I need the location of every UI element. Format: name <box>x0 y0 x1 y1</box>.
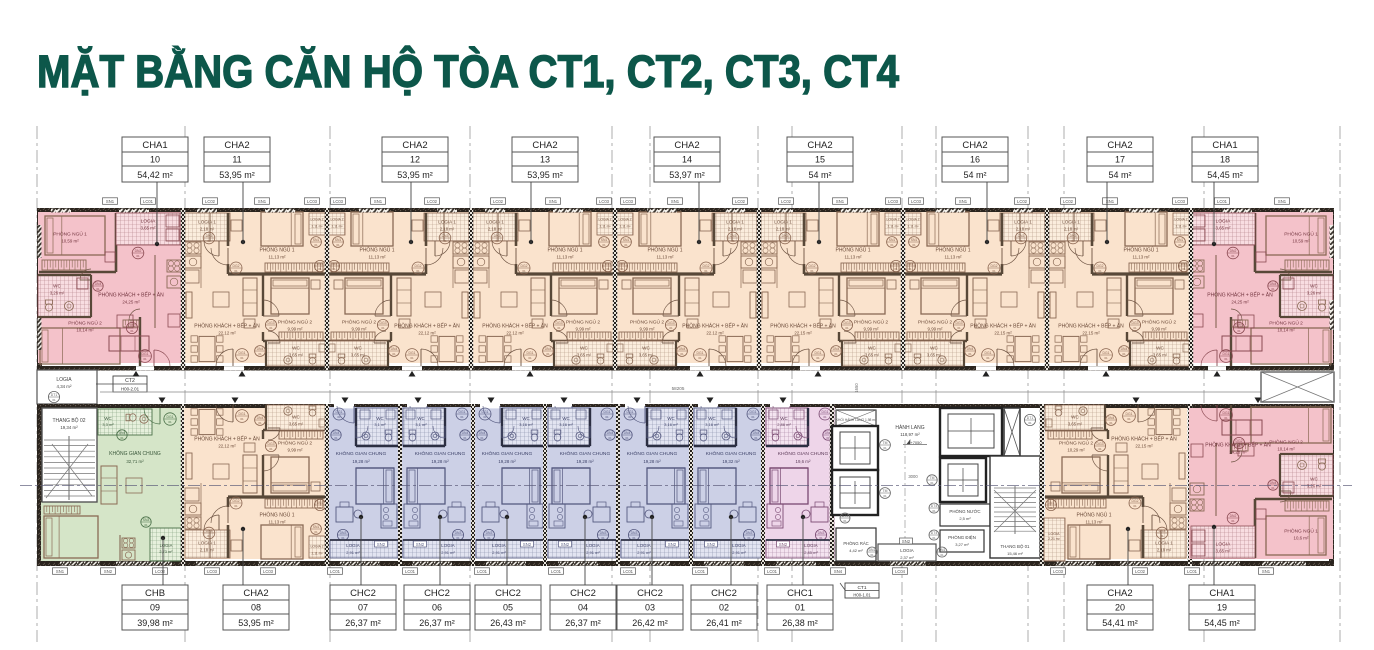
svg-text:CHA2: CHA2 <box>243 588 268 599</box>
svg-text:SN2: SN2 <box>902 539 911 544</box>
svg-text:WC: WC <box>292 415 300 420</box>
svg-text:SN2: SN2 <box>779 542 788 547</box>
svg-text:LOGIA 2: LOGIA 2 <box>310 218 323 222</box>
svg-text:LC01: LC01 <box>330 569 341 574</box>
svg-text:01: 01 <box>930 481 934 485</box>
svg-text:54 m²: 54 m² <box>963 170 986 180</box>
svg-text:LOGIA 1: LOGIA 1 <box>726 220 744 225</box>
svg-text:32,71 m²: 32,71 m² <box>126 459 144 464</box>
svg-text:WC: WC <box>667 416 674 421</box>
svg-text:DN1: DN1 <box>619 262 626 266</box>
svg-text:9,99 m²: 9,99 m² <box>352 327 367 332</box>
svg-text:H00-1.01: H00-1.01 <box>853 593 871 598</box>
svg-text:01: 01 <box>1127 417 1131 421</box>
svg-text:DN4: DN4 <box>624 431 631 435</box>
svg-text:CHA2: CHA2 <box>1107 588 1132 599</box>
svg-text:01: 01 <box>522 269 526 273</box>
svg-text:PHÒNG NGỦ 2: PHÒNG NGỦ 2 <box>854 319 889 326</box>
svg-text:22,12 m²: 22,12 m² <box>418 331 436 336</box>
svg-text:01: 01 <box>1098 269 1102 273</box>
svg-text:2,18 m²: 2,18 m² <box>440 227 455 232</box>
svg-text:PHÒNG NGỦ 2: PHÒNG NGỦ 2 <box>68 320 102 327</box>
svg-text:10,14 m²: 10,14 m² <box>1277 328 1295 333</box>
svg-text:19,32 m²: 19,32 m² <box>722 459 740 464</box>
svg-text:DG3: DG3 <box>380 321 387 325</box>
svg-text:DN3: DN3 <box>1018 234 1025 238</box>
svg-text:H00-2.01: H00-2.01 <box>121 387 140 392</box>
svg-text:19,28 m²: 19,28 m² <box>576 459 594 464</box>
svg-text:26,38 m²: 26,38 m² <box>782 618 818 628</box>
svg-text:18: 18 <box>1220 155 1230 165</box>
svg-text:LC01: LC01 <box>623 569 634 574</box>
svg-text:DG2: DG2 <box>991 264 998 268</box>
svg-text:DG1: DG1 <box>1223 352 1230 356</box>
svg-text:WC: WC <box>1310 477 1318 482</box>
svg-text:SN1: SN1 <box>1177 238 1184 242</box>
svg-text:LOGIA: LOGIA <box>1216 219 1231 225</box>
svg-text:19,6 m²: 19,6 m² <box>796 459 811 464</box>
svg-text:2,18 m²: 2,18 m² <box>1064 227 1079 232</box>
svg-text:12: 12 <box>410 155 420 165</box>
svg-text:PHÒNG NGỦ 1: PHÒNG NGỦ 1 <box>259 512 294 519</box>
svg-text:LOGIA 2: LOGIA 2 <box>618 218 631 222</box>
svg-text:DG2: DG2 <box>1097 264 1104 268</box>
svg-text:LC01: LC01 <box>143 199 154 204</box>
svg-text:KHÔNG GIAN CHUNG: KHÔNG GIAN CHUNG <box>415 450 466 457</box>
svg-text:DN4: DN4 <box>1108 416 1115 420</box>
svg-text:01: 01 <box>495 239 499 243</box>
svg-text:01: 01 <box>1231 254 1235 258</box>
svg-text:LC03: LC03 <box>333 199 344 204</box>
svg-text:01: 01 <box>269 326 273 330</box>
svg-text:118,97 m²: 118,97 m² <box>900 432 920 437</box>
svg-text:01: 01 <box>258 421 262 425</box>
svg-text:3,16 m²: 3,16 m² <box>664 422 678 427</box>
svg-text:PHÒNG NGỦ 1: PHÒNG NGỦ 1 <box>835 247 870 254</box>
svg-text:01: 01 <box>754 436 758 440</box>
svg-text:DN1: DN1 <box>907 262 914 266</box>
svg-text:2,11 m²: 2,11 m² <box>600 225 612 229</box>
svg-text:54,42 m²: 54,42 m² <box>137 170 173 180</box>
svg-text:TM: TM <box>883 489 888 493</box>
svg-text:SN1: SN1 <box>889 238 896 242</box>
svg-text:LC01: LC01 <box>1217 199 1228 204</box>
svg-text:DN3: DN3 <box>455 531 462 535</box>
svg-text:LC01: LC01 <box>477 569 488 574</box>
svg-text:LC04: LC04 <box>895 569 906 574</box>
svg-text:DN3: DN3 <box>442 234 449 238</box>
svg-text:2,11 m²: 2,11 m² <box>908 225 920 229</box>
svg-text:SN1: SN1 <box>1278 199 1287 204</box>
svg-text:DN4: DN4 <box>753 431 760 435</box>
svg-text:DN4: DN4 <box>479 431 486 435</box>
svg-text:PHÒNG KHÁCH + BẾP + ĂN: PHÒNG KHÁCH + BẾP + ĂN <box>394 323 460 330</box>
svg-text:PHÒNG KHÁCH + BẾP + ĂN: PHÒNG KHÁCH + BẾP + ĂN <box>98 292 164 299</box>
svg-text:LC02: LC02 <box>155 569 166 574</box>
svg-text:20: 20 <box>1115 603 1125 613</box>
svg-text:53,95 m²: 53,95 m² <box>527 170 563 180</box>
svg-text:22.12 m²: 22.12 m² <box>706 331 724 336</box>
svg-text:01: 01 <box>870 553 874 557</box>
svg-text:2,91 m²: 2,91 m² <box>637 550 651 555</box>
svg-text:WC: WC <box>417 416 424 421</box>
svg-text:PHÒNG NGỦ 1: PHÒNG NGỦ 1 <box>547 247 582 254</box>
svg-text:01: 01 <box>332 267 336 271</box>
svg-text:2,86 m²: 2,86 m² <box>777 422 791 427</box>
svg-text:2,21 m²: 2,21 m² <box>1048 537 1060 541</box>
svg-text:CHA2: CHA2 <box>1107 140 1132 151</box>
svg-text:SN1: SN1 <box>623 238 630 242</box>
svg-text:01: 01 <box>1133 326 1137 330</box>
svg-text:DN3: DN3 <box>1070 234 1077 238</box>
svg-text:LOGIA 2: LOGIA 2 <box>1174 218 1187 222</box>
svg-text:1650: 1650 <box>854 383 859 393</box>
svg-text:DN4: DN4 <box>95 282 102 286</box>
svg-text:DN1: DN1 <box>317 501 324 505</box>
svg-text:01: 01 <box>1098 447 1102 451</box>
svg-text:PHÒNG ĐIỆN: PHÒNG ĐIỆN <box>948 535 976 540</box>
svg-text:22,15 m²: 22,15 m² <box>794 331 812 336</box>
svg-text:9,99 m²: 9,99 m² <box>576 327 591 332</box>
svg-text:10,29 m²: 10,29 m² <box>1067 448 1085 453</box>
svg-text:DG1: DG1 <box>336 410 343 414</box>
svg-text:9,99 m²: 9,99 m² <box>288 327 303 332</box>
svg-text:LC03: LC03 <box>888 199 899 204</box>
svg-text:HÀNH LANG: HÀNH LANG <box>895 424 924 431</box>
svg-text:DN4: DN4 <box>967 347 974 351</box>
svg-text:01: 01 <box>460 415 464 419</box>
svg-text:WC: WC <box>104 416 111 421</box>
svg-text:LOGIA 2: LOGIA 2 <box>330 218 343 222</box>
svg-text:DG1: DG1 <box>822 410 829 414</box>
svg-text:DN3: DN3 <box>206 234 213 238</box>
svg-text:KHÔNG GIAN CHUNG: KHÔNG GIAN CHUNG <box>560 450 611 457</box>
svg-text:11,13 m²: 11,13 m² <box>1085 520 1103 525</box>
svg-text:01: 01 <box>234 504 238 508</box>
svg-text:CHA1: CHA1 <box>1209 588 1234 599</box>
svg-text:01: 01 <box>52 398 56 402</box>
svg-text:PHÒNG KHÁCH + BẾP + ĂN: PHÒNG KHÁCH + BẾP + ĂN <box>770 323 836 330</box>
svg-text:WC: WC <box>708 416 715 421</box>
svg-text:01: 01 <box>1133 504 1137 508</box>
svg-text:19,28 m²: 19,28 m² <box>498 459 516 464</box>
svg-text:22,12 m²: 22,12 m² <box>218 331 236 336</box>
svg-text:22,12 m²: 22,12 m² <box>218 444 236 449</box>
svg-text:07: 07 <box>358 603 368 613</box>
svg-text:2,91 m²: 2,91 m² <box>441 550 455 555</box>
svg-text:LC02: LC02 <box>493 199 504 204</box>
svg-text:LC01: LC01 <box>695 569 706 574</box>
svg-text:3,65 m²: 3,65 m² <box>289 422 304 427</box>
svg-text:3,1 m²: 3,1 m² <box>374 422 386 427</box>
svg-text:01: 01 <box>337 415 341 419</box>
svg-text:DG2: DG2 <box>233 264 240 268</box>
svg-text:KHÔNG GIAN CHUNG: KHÔNG GIAN CHUNG <box>706 450 757 457</box>
svg-text:LOGIA: LOGIA <box>346 543 359 548</box>
svg-text:01: 01 <box>1109 421 1113 425</box>
svg-text:LOGIA 2: LOGIA 2 <box>310 545 323 549</box>
svg-text:LOGIA 1: LOGIA 1 <box>1155 541 1173 546</box>
svg-text:DG2: DG2 <box>415 264 422 268</box>
svg-text:LOGIA 1: LOGIA 1 <box>198 541 216 546</box>
svg-text:LC02: LC02 <box>205 199 216 204</box>
svg-text:4,42 m²: 4,42 m² <box>849 548 863 553</box>
svg-text:01: 01 <box>480 436 484 440</box>
svg-text:2,18 m²: 2,18 m² <box>1016 227 1031 232</box>
svg-text:54,41 m²: 54,41 m² <box>1102 618 1138 628</box>
svg-text:01: 01 <box>908 267 912 271</box>
svg-text:9,99 m²: 9,99 m² <box>288 448 303 453</box>
svg-text:01: 01 <box>334 436 338 440</box>
svg-text:DN4: DN4 <box>1270 481 1277 485</box>
svg-text:DG1: DG1 <box>239 351 246 355</box>
svg-text:11,13 m²: 11,13 m² <box>268 255 286 260</box>
svg-text:CHA1: CHA1 <box>1212 140 1237 151</box>
svg-text:KHÔNG GIAN CHUNG: KHÔNG GIAN CHUNG <box>627 450 678 457</box>
svg-text:58205: 58205 <box>672 386 685 391</box>
svg-text:01: 01 <box>318 267 322 271</box>
svg-text:DG1: DG1 <box>627 410 634 414</box>
svg-text:3,65 m²: 3,65 m² <box>1216 549 1231 554</box>
svg-text:LOGIA 1: LOGIA 1 <box>438 220 456 225</box>
svg-text:DG2: DG2 <box>1236 324 1243 328</box>
svg-text:DN3: DN3 <box>782 234 789 238</box>
svg-text:TM: TM <box>930 476 935 480</box>
svg-text:26,43 m²: 26,43 m² <box>490 618 526 628</box>
svg-text:DN2: DN2 <box>1230 514 1237 518</box>
svg-text:06: 06 <box>432 603 442 613</box>
svg-text:SN1: SN1 <box>959 199 968 204</box>
svg-text:LOGIA: LOGIA <box>900 548 913 553</box>
svg-text:01: 01 <box>336 243 340 247</box>
svg-text:DN2: DN2 <box>135 249 142 253</box>
svg-text:LOGIA 2: LOGIA 2 <box>598 218 611 222</box>
svg-text:2,11 m²: 2,11 m² <box>332 225 344 229</box>
svg-text:DT1: DT1 <box>51 393 58 397</box>
svg-text:01: 01 <box>816 356 820 360</box>
svg-text:SN2: SN2 <box>561 542 570 547</box>
svg-text:MẶT BẰNG CĂN HỘ TÒA CT1, CT2,: MẶT BẰNG CĂN HỘ TÒA CT1, CT2, CT3, CT4 <box>37 46 899 97</box>
svg-text:01: 01 <box>96 287 100 291</box>
svg-text:01: 01 <box>628 415 632 419</box>
svg-text:01: 01 <box>940 553 944 557</box>
svg-text:DN1: DN1 <box>1181 262 1188 266</box>
svg-text:CHC2: CHC2 <box>570 588 596 599</box>
svg-text:PHÒNG NGỦ 2: PHÒNG NGỦ 2 <box>566 319 601 326</box>
svg-text:LC03: LC03 <box>911 199 922 204</box>
svg-text:LC01: LC01 <box>767 569 778 574</box>
svg-text:11,13 m²: 11,13 m² <box>656 255 674 260</box>
svg-text:PHÒNG KHÁCH + BẾP + ĂN: PHÒNG KHÁCH + BẾP + ĂN <box>1111 436 1177 443</box>
svg-text:WC: WC <box>1310 284 1318 289</box>
svg-text:01: 01 <box>883 446 887 450</box>
svg-text:DG3: DG3 <box>268 442 275 446</box>
svg-text:LOGIA: LOGIA <box>160 543 173 548</box>
svg-text:DG3: DG3 <box>556 321 563 325</box>
svg-text:SN1: SN1 <box>313 238 320 242</box>
svg-text:11: 11 <box>232 155 241 165</box>
svg-text:01: 01 <box>528 356 532 360</box>
svg-text:11,13 m²: 11,13 m² <box>268 520 286 525</box>
svg-text:CHB: CHB <box>145 588 165 599</box>
svg-text:LC01: LC01 <box>405 569 416 574</box>
svg-text:19,28 m²: 19,28 m² <box>643 459 661 464</box>
svg-text:LC03: LC03 <box>1053 569 1064 574</box>
svg-text:LOGIA: LOGIA <box>441 543 454 548</box>
svg-text:LOGIA 1: LOGIA 1 <box>774 220 792 225</box>
svg-text:3,26 m²: 3,26 m² <box>1307 484 1322 489</box>
svg-text:22,15 m²: 22,15 m² <box>1135 444 1153 449</box>
svg-text:DG1: DG1 <box>167 415 174 419</box>
svg-text:01: 01 <box>823 415 827 419</box>
svg-text:39,98 m²: 39,98 m² <box>137 618 173 628</box>
svg-text:LOGIA 1: LOGIA 1 <box>1062 220 1080 225</box>
svg-text:2,73 m²: 2,73 m² <box>159 549 173 554</box>
svg-text:01: 01 <box>136 254 140 258</box>
svg-text:01: 01 <box>1231 519 1235 523</box>
svg-text:01: 01 <box>783 239 787 243</box>
svg-text:WC: WC <box>522 416 529 421</box>
svg-text:DN1: DN1 <box>605 262 612 266</box>
svg-text:LC03: LC03 <box>623 199 634 204</box>
svg-text:DT4: DT4 <box>931 531 938 535</box>
svg-text:CHC2: CHC2 <box>711 588 737 599</box>
svg-text:DN4: DN4 <box>833 347 840 351</box>
svg-text:LOGIA: LOGIA <box>732 543 745 548</box>
svg-text:3,3 m²: 3,3 m² <box>102 422 114 427</box>
svg-text:01: 01 <box>810 269 814 273</box>
svg-text:DN3: DN3 <box>818 531 825 535</box>
svg-text:LC02: LC02 <box>735 199 746 204</box>
svg-text:TM: TM <box>883 441 888 445</box>
svg-text:DN3: DN3 <box>631 531 638 535</box>
svg-text:SN2: SN2 <box>523 542 532 547</box>
svg-text:11,13 m²: 11,13 m² <box>844 255 862 260</box>
svg-text:PHÒNG NGỦ 1: PHÒNG NGỦ 1 <box>1123 247 1158 254</box>
svg-text:19,28 m²: 19,28 m² <box>431 459 449 464</box>
svg-text:LOGIA 1: LOGIA 1 <box>1014 220 1032 225</box>
svg-text:CHA2: CHA2 <box>224 140 249 151</box>
svg-text:01: 01 <box>381 326 385 330</box>
svg-text:PHÒNG NGỦ 1: PHÒNG NGỦ 1 <box>359 247 394 254</box>
svg-text:01: 01 <box>843 519 847 523</box>
svg-text:01: 01 <box>932 509 936 513</box>
svg-text:2,85 m²: 2,85 m² <box>804 550 818 555</box>
svg-text:01: 01 <box>269 447 273 451</box>
svg-text:WC: WC <box>292 346 300 351</box>
svg-text:CT1: CT1 <box>857 585 866 591</box>
svg-text:KHÔNG GIAN CHUNG: KHÔNG GIAN CHUNG <box>778 450 829 457</box>
svg-text:01: 01 <box>258 352 262 356</box>
svg-text:01: 01 <box>606 267 610 271</box>
svg-text:01: 01 <box>890 243 894 247</box>
svg-text:DN4: DN4 <box>545 347 552 351</box>
svg-text:LC02: LC02 <box>781 199 792 204</box>
svg-text:01: 01 <box>883 494 887 498</box>
svg-text:DN4: DN4 <box>257 416 264 420</box>
svg-text:DG1: DG1 <box>409 351 416 355</box>
svg-text:DG1: DG1 <box>142 352 149 356</box>
svg-text:KHỐI HÀNH LANG 1,98 m²: KHỐI HÀNH LANG 1,98 m² <box>836 417 877 422</box>
svg-text:CHA2: CHA2 <box>674 140 699 151</box>
svg-text:CHC2: CHC2 <box>495 588 521 599</box>
svg-text:01: 01 <box>1271 287 1275 291</box>
svg-text:SN1: SN1 <box>671 199 680 204</box>
svg-text:9,99 m²: 9,99 m² <box>1152 327 1167 332</box>
svg-text:01: 01 <box>443 239 447 243</box>
svg-text:01: 01 <box>1122 352 1126 356</box>
svg-text:PHÒNG NGỦ 2: PHÒNG NGỦ 2 <box>918 319 953 326</box>
svg-text:01: 01 <box>1178 243 1182 247</box>
svg-text:9,99 m²: 9,99 m² <box>928 327 943 332</box>
svg-text:PHÒNG NGỦ 2: PHÒNG NGỦ 2 <box>342 319 377 326</box>
svg-text:DN4: DN4 <box>1270 282 1277 286</box>
svg-text:PHÒNG NGỦ 1: PHÒNG NGỦ 1 <box>935 247 970 254</box>
svg-text:CHC2: CHC2 <box>350 588 376 599</box>
svg-text:LC01: LC01 <box>551 569 562 574</box>
svg-text:LC01: LC01 <box>1187 569 1198 574</box>
svg-text:24,25 m²: 24,25 m² <box>1231 300 1249 305</box>
svg-text:01: 01 <box>795 603 805 613</box>
svg-text:01: 01 <box>1104 356 1108 360</box>
svg-text:CHA2: CHA2 <box>807 140 832 151</box>
svg-text:THANG BỘ 02: THANG BỘ 02 <box>52 417 85 424</box>
svg-text:SN2: SN2 <box>668 542 677 547</box>
svg-text:2,18 m²: 2,18 m² <box>488 227 503 232</box>
svg-text:SN1: SN1 <box>335 238 342 242</box>
svg-text:15,46 m²: 15,46 m² <box>1007 551 1023 556</box>
svg-text:WC: WC <box>868 346 876 351</box>
svg-text:01: 01 <box>826 436 830 440</box>
svg-text:17: 17 <box>1115 155 1125 165</box>
svg-text:2,18 m²: 2,18 m² <box>200 227 215 232</box>
svg-text:LOGIA: LOGIA <box>141 219 156 225</box>
svg-text:01: 01 <box>669 326 673 330</box>
svg-text:54,45 m²: 54,45 m² <box>1207 170 1243 180</box>
svg-text:19,34 m²: 19,34 m² <box>60 425 78 430</box>
svg-text:01: 01 <box>602 243 606 247</box>
svg-text:DG1: DG1 <box>239 412 246 416</box>
svg-text:53,95 m²: 53,95 m² <box>397 170 433 180</box>
svg-text:DN4: DN4 <box>679 347 686 351</box>
svg-text:2,91 m²: 2,91 m² <box>346 550 360 555</box>
svg-text:01: 01 <box>1182 267 1186 271</box>
svg-text:03: 03 <box>645 603 655 613</box>
svg-text:3,16 m²: 3,16 m² <box>519 422 533 427</box>
svg-text:26,37 m²: 26,37 m² <box>565 618 601 628</box>
svg-text:THANG BỘ 01: THANG BỘ 01 <box>1000 544 1030 549</box>
svg-text:3,26 m²: 3,26 m² <box>50 291 65 296</box>
svg-text:08: 08 <box>251 603 261 613</box>
svg-text:DN1: DN1 <box>1048 501 1055 505</box>
svg-text:26,37 m²: 26,37 m² <box>419 618 455 628</box>
svg-text:2,91 m²: 2,91 m² <box>586 550 600 555</box>
svg-text:01: 01 <box>318 506 322 510</box>
svg-text:DG1: DG1 <box>697 351 704 355</box>
svg-text:3,65 m²: 3,65 m² <box>1216 226 1231 231</box>
svg-text:WC: WC <box>376 416 383 421</box>
svg-text:DT4: DT4 <box>842 514 849 518</box>
svg-text:SN1: SN1 <box>258 199 267 204</box>
svg-text:09: 09 <box>150 603 160 613</box>
svg-text:WC: WC <box>580 346 588 351</box>
svg-text:DG1: DG1 <box>750 410 757 414</box>
svg-text:01: 01 <box>912 243 916 247</box>
svg-text:LC03: LC03 <box>207 569 218 574</box>
svg-text:WC: WC <box>1071 415 1079 420</box>
svg-text:14: 14 <box>682 155 692 165</box>
svg-text:01: 01 <box>314 243 318 247</box>
